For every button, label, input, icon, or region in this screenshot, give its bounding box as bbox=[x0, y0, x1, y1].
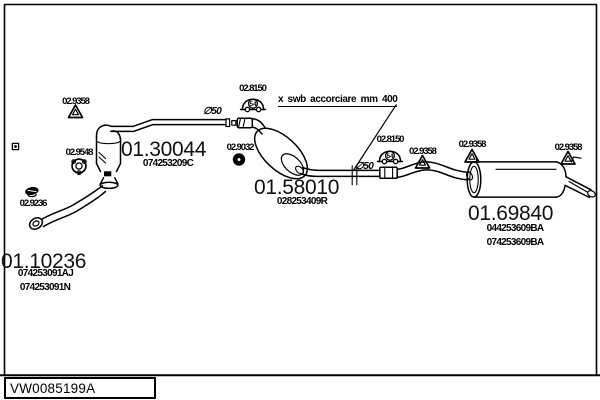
small-part-label-gasket: 02.9548 bbox=[53, 147, 105, 158]
exhaust-diagram-page: 54 54 02.9358 02.9548 bbox=[0, 0, 600, 400]
small-part-label-mount-b: 02.8150 bbox=[364, 134, 416, 145]
ring-gasket-icon bbox=[233, 153, 245, 165]
mount-size-mark: 54 bbox=[387, 154, 394, 160]
part-code-front-pipe-2: 074253091N bbox=[0, 282, 90, 293]
part-code-front-pipe-1: 074253091AJ bbox=[0, 268, 91, 279]
small-part-label-hanger-rear-left: 02.9358 bbox=[446, 139, 498, 150]
small-part-label-hanger-rear-right: 02.9358 bbox=[542, 142, 594, 153]
rear-muffler-drawing bbox=[465, 157, 596, 198]
sheet-code-box: VW0085199A bbox=[4, 377, 156, 399]
small-part-label-hanger-mid: 02.9358 bbox=[397, 146, 449, 157]
mount-size-mark: 54 bbox=[250, 102, 257, 108]
shorten-note: x swb accorciare mm 400 bbox=[278, 94, 397, 107]
rear-pipe-drawing bbox=[380, 162, 469, 180]
round-mount-icon: 54 bbox=[241, 99, 266, 111]
diameter-label-2: ∅50 bbox=[355, 161, 373, 172]
part-code-rear-muffler-1: 044253609BA bbox=[455, 223, 575, 234]
connecting-pipe-drawing bbox=[111, 119, 236, 131]
small-part-label-ring: 02.9032 bbox=[214, 142, 266, 153]
part-code-rear-muffler-2: 074253609BA bbox=[455, 237, 575, 248]
small-part-label-hanger-left: 02.9358 bbox=[50, 96, 102, 107]
triangle-hanger-icon bbox=[69, 105, 83, 118]
part-code-middle-pipe: 074253209C bbox=[108, 158, 228, 169]
fixing-point-marker bbox=[12, 143, 18, 149]
small-part-label-mount-a: 02.8150 bbox=[227, 83, 279, 94]
gasket-icon bbox=[72, 159, 86, 174]
clamp-icon bbox=[24, 186, 39, 197]
small-part-label-clamp: 02.9236 bbox=[7, 198, 59, 209]
sheet-code: VW0085199A bbox=[10, 381, 95, 396]
diameter-label-1: ∅50 bbox=[203, 106, 221, 117]
part-code-centre-muffler: 028253409R bbox=[242, 196, 362, 207]
